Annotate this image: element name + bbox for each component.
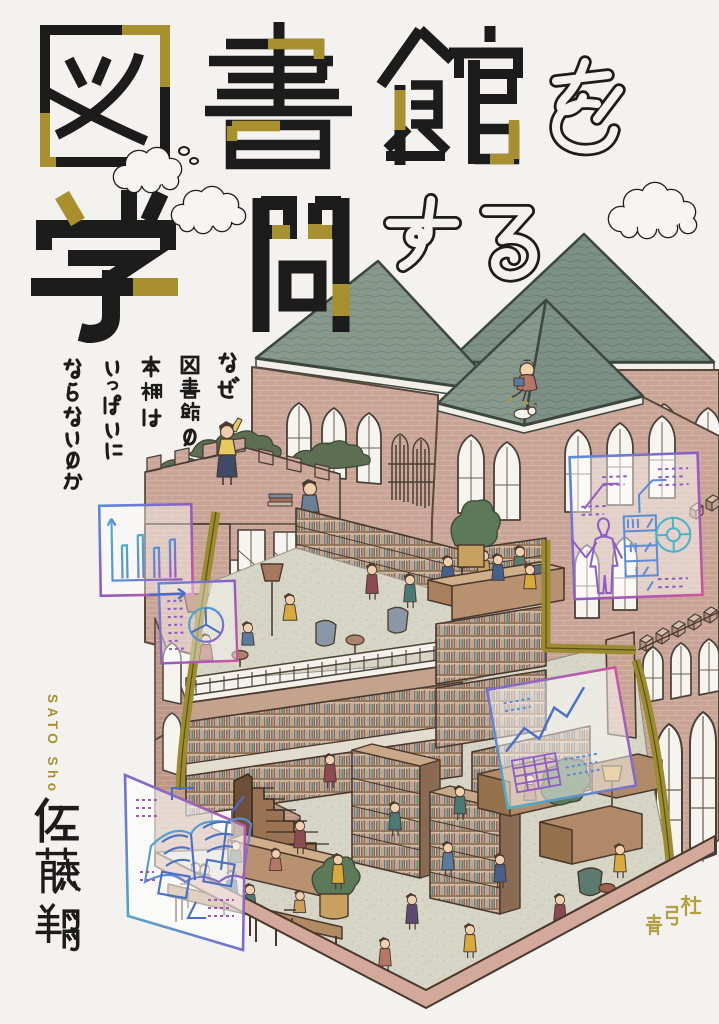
- svg-text:SATO Sho: SATO Sho: [45, 694, 60, 796]
